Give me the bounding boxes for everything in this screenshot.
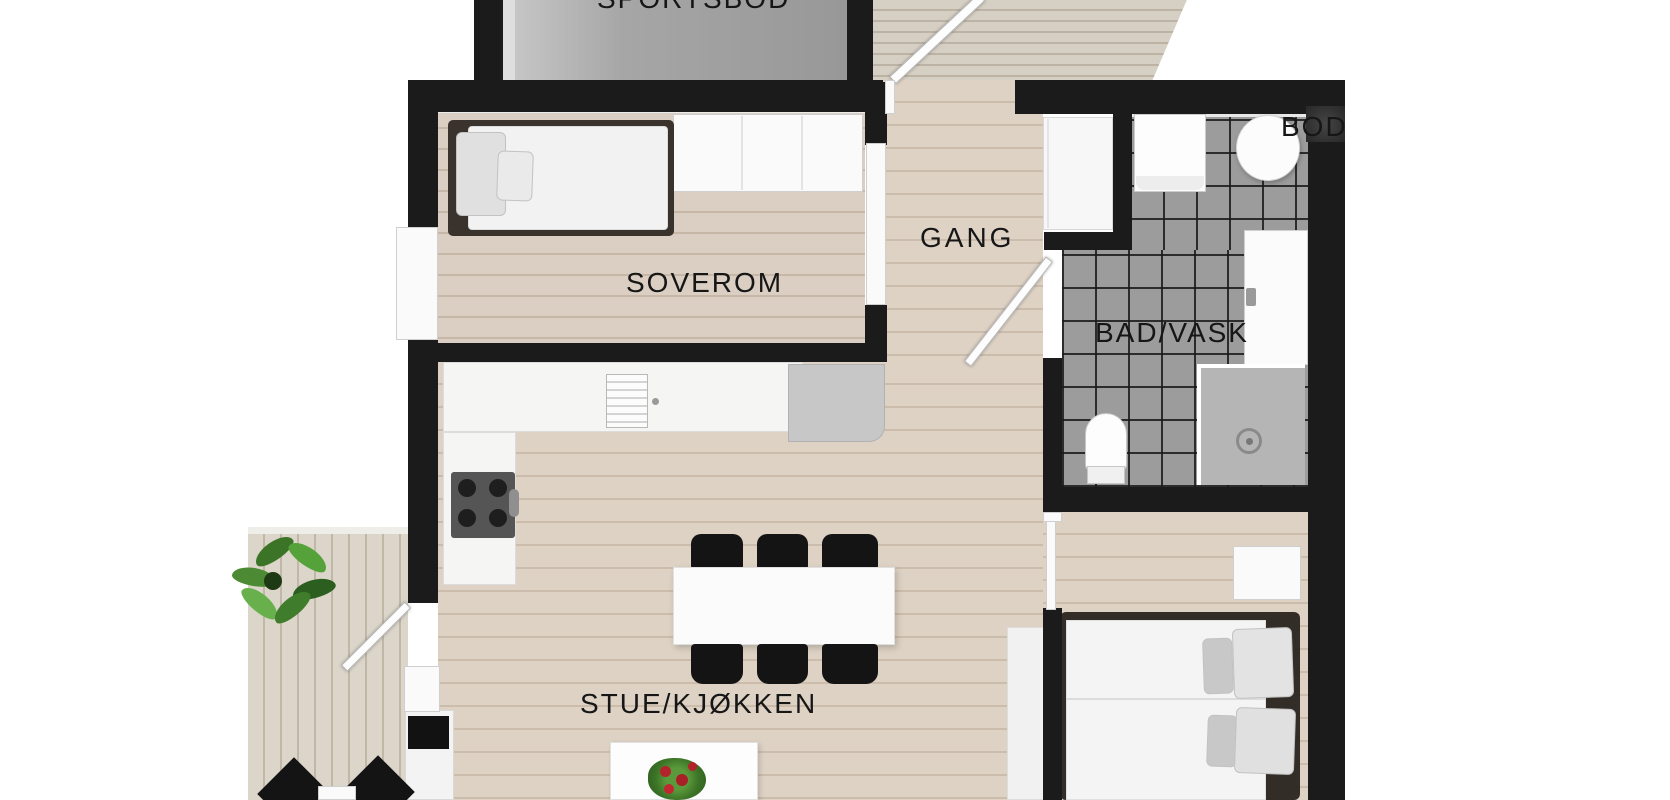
flower-red: [660, 766, 671, 777]
dining-chair: [822, 644, 878, 684]
stove-burner: [489, 479, 507, 497]
bedroom2-wardrobe: [1233, 546, 1301, 600]
bod-partition-wall: [1113, 113, 1132, 234]
soverom-closet-divider: [741, 116, 743, 190]
wall-end-cap: [1043, 512, 1062, 522]
bathroom-left-wall: [1043, 358, 1062, 487]
soverom-right-wall-upper: [865, 82, 887, 145]
balcony-deck: [248, 527, 408, 800]
hall-cabinet-edge: [1047, 119, 1049, 228]
bathroom-step-wall: [1044, 232, 1132, 250]
plant-center: [264, 572, 282, 590]
double-bed-pillow: [1232, 627, 1294, 699]
soverom-window: [396, 227, 438, 340]
toilet-tank: [1087, 466, 1125, 484]
soverom-closet-divider: [801, 116, 803, 190]
flower-red: [676, 774, 688, 786]
dining-chair: [822, 534, 878, 570]
bedroom2-left-wall: [1043, 608, 1062, 800]
room-label-bad-vask: BAD/VASK: [1095, 319, 1249, 347]
bathroom-bottom-wall: [1043, 487, 1345, 512]
dining-chair: [757, 534, 808, 570]
double-bed-pillow-small: [1206, 714, 1238, 767]
stove-burner: [458, 509, 476, 527]
kitchen-faucet: [652, 398, 659, 405]
wall-end-cap: [404, 666, 440, 712]
sportsbod-floor-edge: [503, 0, 515, 81]
bedroom2-door-leaf: [1046, 518, 1056, 610]
room-label-sportsbod: SPORTSBOD: [597, 0, 790, 13]
balcony-deck-trim: [248, 527, 408, 534]
flower-red: [664, 784, 674, 794]
hall-cabinet: [1043, 117, 1113, 230]
washing-machine-front: [1136, 176, 1204, 190]
stove-burner: [489, 509, 507, 527]
entry-door-post: [885, 80, 895, 114]
room-label-bod: BOD: [1281, 113, 1348, 141]
shower-drain-dot: [1246, 438, 1253, 445]
soverom-door-panel: [866, 143, 886, 305]
top-wall: [408, 80, 883, 112]
floor-plan: SPORTSBOD SOVEROM GANG BOD BAD/VASK STUE…: [0, 0, 1670, 800]
room-label-soverom: SOVEROM: [626, 269, 783, 297]
double-bed-seam: [1066, 698, 1266, 700]
stove-knob: [509, 489, 519, 517]
sportsbod-right-wall: [847, 0, 873, 81]
dining-chair: [691, 534, 743, 570]
right-outer-wall: [1308, 80, 1345, 800]
single-bed-pillow-small: [496, 150, 534, 201]
left-outer-wall: [408, 80, 438, 603]
double-bed-pillow: [1234, 707, 1296, 775]
kitchen-fridge: [788, 364, 885, 442]
shower-tray: [1197, 364, 1305, 485]
dining-chair: [757, 644, 808, 684]
room-label-gang: GANG: [920, 224, 1014, 252]
soverom-bottom-wall: [408, 343, 887, 362]
toilet-bowl: [1085, 413, 1127, 473]
double-bed-pillow-small: [1202, 637, 1234, 694]
sportsbod-left-wall: [474, 0, 503, 81]
tv-screen: [408, 716, 449, 749]
top-wall-right: [1015, 80, 1345, 114]
flower-red: [688, 762, 697, 771]
vanity-faucet: [1246, 288, 1256, 306]
dining-chair: [691, 644, 743, 684]
kitchen-sink: [606, 374, 648, 428]
sideboard: [1007, 627, 1044, 800]
outdoor-side-table: [318, 786, 356, 800]
stove-burner: [458, 479, 476, 497]
dining-table: [673, 567, 895, 645]
room-label-stue-kjokken: STUE/KJØKKEN: [580, 690, 817, 718]
soverom-closet: [673, 114, 863, 192]
